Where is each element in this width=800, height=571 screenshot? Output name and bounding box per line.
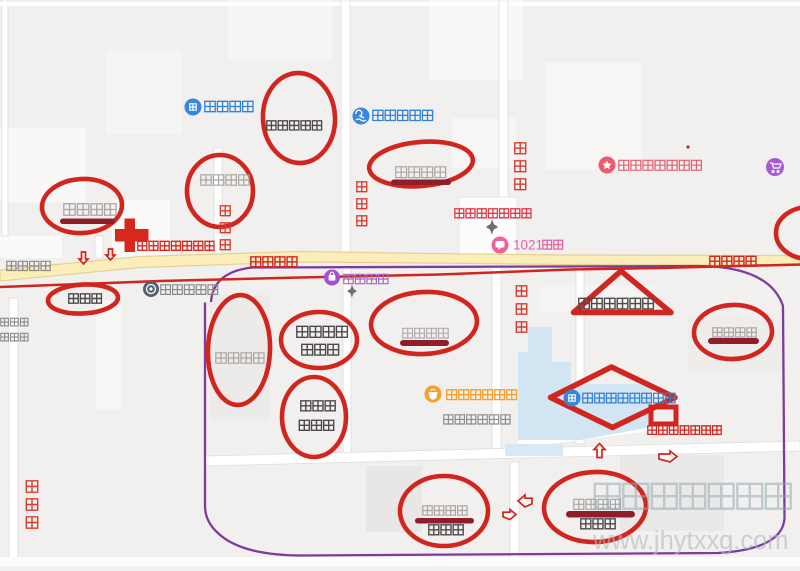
svg-text:www.jhytxxg.com: www.jhytxxg.com <box>592 527 789 555</box>
svg-text:1021: 1021 <box>513 238 543 253</box>
